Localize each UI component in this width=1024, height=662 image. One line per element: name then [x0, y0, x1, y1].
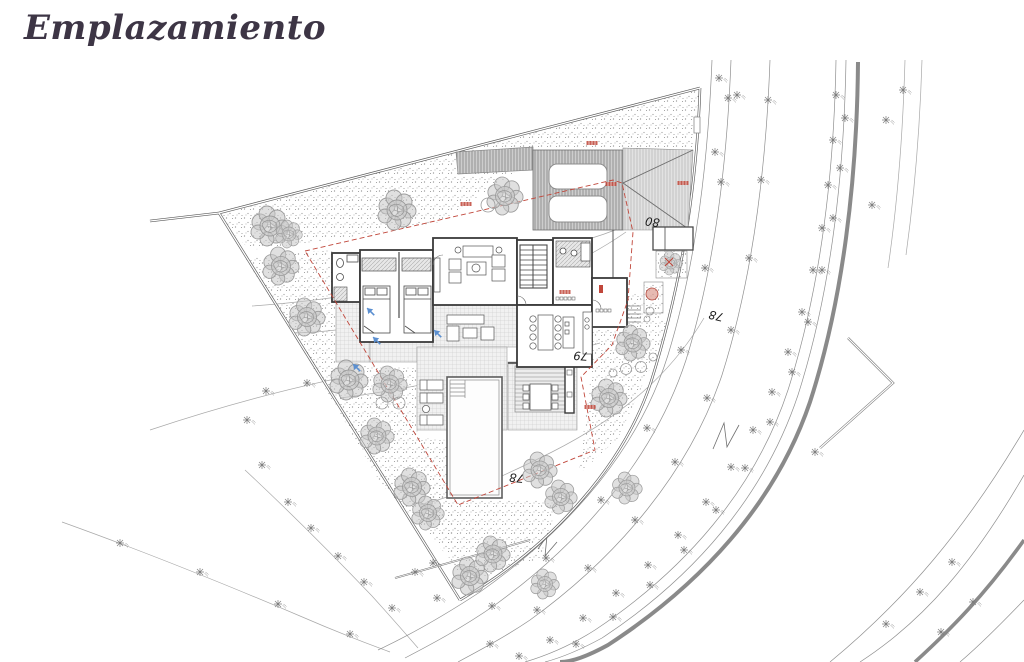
survey-marker: [768, 388, 781, 397]
contour-elevation-label: 78: [509, 470, 525, 485]
car: [549, 164, 607, 189]
survey-marker: [572, 640, 585, 649]
survey-marker: [727, 463, 740, 472]
survey-marker: [433, 594, 446, 603]
red-elevation-mark: [606, 182, 617, 186]
survey-marker: [749, 426, 762, 435]
contour-elevation-label: 79: [573, 348, 589, 363]
survey-marker: [243, 416, 256, 425]
survey-marker: [824, 181, 837, 190]
tree: [523, 452, 557, 488]
survey-marker: [631, 516, 644, 525]
survey-marker: [609, 613, 622, 622]
survey-marker: [488, 602, 501, 611]
survey-marker: [274, 600, 287, 609]
survey-marker: [346, 630, 359, 639]
bed: [363, 286, 390, 333]
survey-marker: [868, 201, 881, 210]
survey-marker: [948, 558, 961, 567]
survey-marker: [411, 568, 424, 577]
side-table: [422, 405, 429, 412]
pool: [447, 377, 502, 498]
tree: [612, 472, 642, 504]
contour-elevation-label: 80: [644, 214, 660, 230]
survey-marker: [733, 91, 746, 100]
roadside-wedge: [820, 338, 893, 448]
survey-marker: [717, 178, 730, 187]
survey-marker: [515, 652, 528, 661]
survey-marker: [841, 114, 854, 123]
survey-marker: [646, 581, 659, 590]
sun-loungers: [420, 380, 443, 425]
car: [549, 196, 607, 222]
bathroom-2-fixtures: [556, 241, 590, 267]
survey-marker: [882, 620, 895, 629]
survey-marker: [712, 506, 725, 515]
wardrobe: [362, 258, 396, 271]
survey-marker: [715, 74, 728, 83]
entry-wing: [592, 278, 627, 327]
survey-marker: [258, 461, 271, 470]
red-elevation-mark: [678, 181, 689, 185]
site-plan-drawing: 80797878: [0, 0, 1024, 662]
survey-marker: [784, 348, 797, 357]
survey-marker: [836, 164, 849, 173]
pergola-dining: [508, 363, 575, 413]
red-elevation-mark: [585, 405, 596, 409]
survey-marker: [829, 136, 842, 145]
survey-marker: [764, 96, 777, 105]
survey-marker: [832, 91, 845, 100]
survey-marker: [745, 254, 758, 263]
wardrobe: [402, 258, 431, 271]
red-elevation-mark: [560, 290, 571, 294]
survey-marker: [644, 561, 657, 570]
staircase: [520, 245, 547, 288]
survey-marker: [612, 589, 625, 598]
survey-marker: [579, 614, 592, 623]
survey-marker: [766, 418, 779, 427]
survey-marker: [671, 458, 684, 467]
survey-marker: [711, 148, 724, 157]
red-elevation-mark: [587, 141, 598, 145]
survey-marker: [702, 498, 715, 507]
survey-marker: [486, 640, 499, 649]
survey-marker: [818, 224, 831, 233]
survey-marker: [284, 498, 297, 507]
outdoor-table: [530, 384, 551, 410]
survey-marker: [584, 564, 597, 573]
carport-roof-strip: [456, 147, 533, 174]
survey-marker: [727, 326, 740, 335]
fireplace: [599, 285, 603, 293]
survey-marker: [677, 346, 690, 355]
survey-marker: [303, 379, 316, 388]
survey-marker: [741, 464, 754, 473]
survey-marker: [116, 539, 129, 548]
survey-marker: [388, 604, 401, 613]
contour-elevation-label: 78: [707, 307, 724, 324]
survey-marker: [643, 424, 656, 433]
red-shrub: [646, 288, 658, 300]
survey-marker: [334, 552, 347, 561]
survey-marker: [788, 368, 801, 377]
survey-marker: [882, 116, 895, 125]
survey-marker: [916, 588, 929, 597]
bed: [404, 286, 431, 333]
survey-marker: [262, 387, 275, 396]
survey-marker: [811, 448, 824, 457]
survey-marker: [701, 264, 714, 273]
survey-marker: [757, 176, 770, 185]
page: Emplazamiento: [0, 0, 1024, 662]
survey-marker: [546, 636, 559, 645]
survey-marker: [899, 86, 912, 95]
survey-marker: [674, 531, 687, 540]
red-elevation-mark: [461, 202, 472, 206]
boundary-notch: [694, 117, 700, 133]
